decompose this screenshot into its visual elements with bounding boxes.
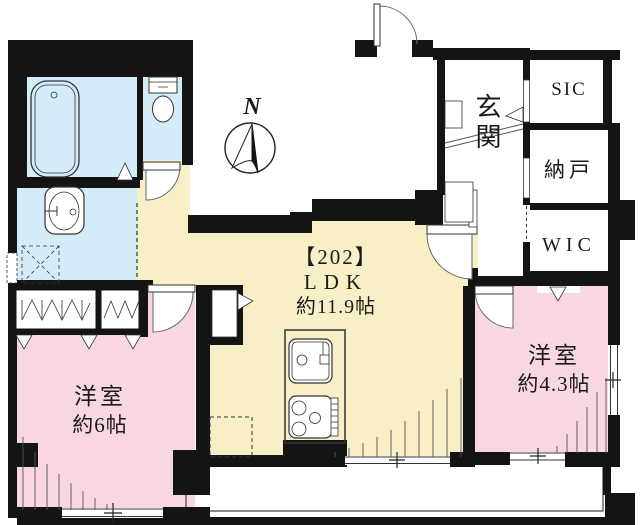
sink-faucet-icon	[320, 355, 329, 364]
north-label: N	[238, 94, 266, 121]
floor-plan: 【202】 LDK 約11.9帖 洋室 約6帖 洋室 約4.3帖 玄関 SIC …	[0, 0, 640, 525]
entrance-door	[374, 4, 380, 46]
storage-label: 納戸	[531, 154, 607, 184]
entrance-step-arrow-icon	[506, 107, 523, 122]
ldk-size: 約11.9帖	[251, 295, 421, 320]
ldk-name: LDK	[251, 270, 421, 295]
wall-niche	[7, 253, 17, 283]
bedroom-right-door	[475, 286, 513, 294]
wic-label: WIC	[526, 234, 612, 257]
closet-right	[100, 289, 140, 330]
bedroom-left-door	[148, 285, 195, 292]
bedroom-left-label: 洋室 約6帖	[30, 383, 170, 439]
bathroom-floor	[27, 75, 137, 180]
toilet-bowl	[153, 96, 174, 122]
sic-door	[524, 80, 530, 122]
compass	[225, 123, 275, 173]
entrance-label: 玄関	[468, 93, 505, 153]
entrance-counter	[445, 182, 473, 222]
sic-label: SIC	[531, 79, 607, 101]
toilet-door	[143, 162, 180, 170]
unit-ldk-label: 【202】 LDK 約11.9帖	[251, 245, 421, 320]
bedroom-right-label: 洋室 約4.3帖	[484, 342, 624, 398]
storage-door	[524, 158, 530, 198]
shoe-cabinet	[445, 101, 462, 128]
toilet-tank	[149, 77, 177, 93]
balcony	[186, 465, 603, 511]
entrance-door-swing	[379, 6, 417, 44]
unit-number: 【202】	[294, 245, 378, 269]
